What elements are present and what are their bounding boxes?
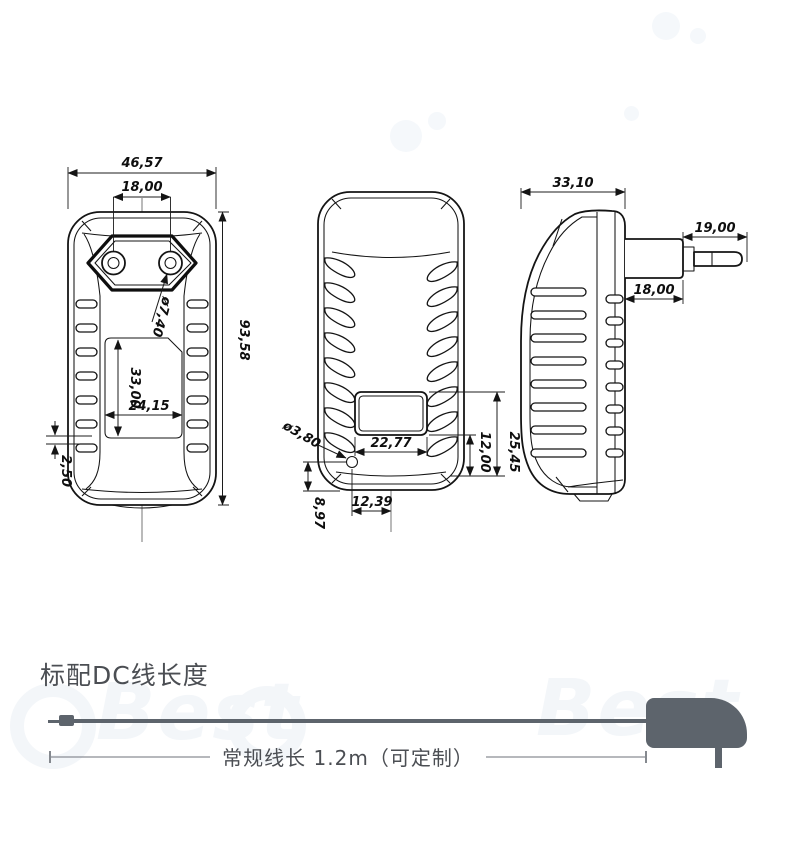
dim-hole-diameter: ø3,80	[279, 418, 323, 452]
cable-length-note: 常规线长 1.2m（可定制）	[222, 742, 474, 771]
right-pin-hole	[159, 252, 182, 275]
cable-length-dimension: 常规线长 1.2m（可定制）	[49, 742, 647, 771]
plug	[625, 239, 742, 278]
dim-total-height: 93,58	[236, 319, 251, 360]
dim-window-bottom: 12,00	[477, 431, 492, 472]
dimension-line-left	[51, 756, 210, 757]
dc-cable-length-heading: 标配DC线长度	[40, 656, 209, 692]
adapter-technical-drawing: 46,57 18,00 93,58 ø7,40 33,00 24,15 2,50	[0, 0, 790, 600]
dim-window-top: 25,45	[506, 431, 521, 472]
back-view: 22,77 ø3,80 12,00 25,45 12,39 8,97	[279, 192, 521, 532]
label-window	[355, 392, 427, 435]
dim-hole-offset-x: 12,39	[351, 495, 392, 510]
adapter-ac-stub	[715, 747, 722, 768]
dim-hole-offset-y: 8,97	[311, 497, 326, 530]
side-view: 33,10 19,00 18,00	[521, 176, 747, 501]
product-spec-page: Best Best	[0, 0, 790, 862]
dim-bottom-offset: 2,50	[58, 455, 73, 487]
plug-base	[625, 239, 683, 278]
dim-label-width: 24,15	[128, 399, 169, 414]
dimension-line-right	[486, 756, 645, 757]
dimension-tick-right	[645, 751, 647, 763]
dc-cable-wire	[74, 719, 650, 723]
front-view: 46,57 18,00 93,58 ø7,40 33,00 24,15 2,50	[46, 156, 251, 542]
plug-pin	[694, 252, 742, 266]
adapter-body-silhouette	[646, 698, 747, 748]
dim-pin-spacing: 18,00	[121, 180, 162, 195]
dim-total-width: 46,57	[120, 156, 163, 171]
dim-plug-base-length: 18,00	[633, 283, 674, 298]
left-pin-hole	[102, 252, 125, 275]
dim-window-width: 22,77	[370, 436, 412, 451]
dim-pin-length: 19,00	[694, 221, 735, 236]
pin-collar	[683, 247, 694, 271]
dim-body-depth: 33,10	[552, 176, 593, 191]
dc-plug-connector	[59, 715, 74, 726]
